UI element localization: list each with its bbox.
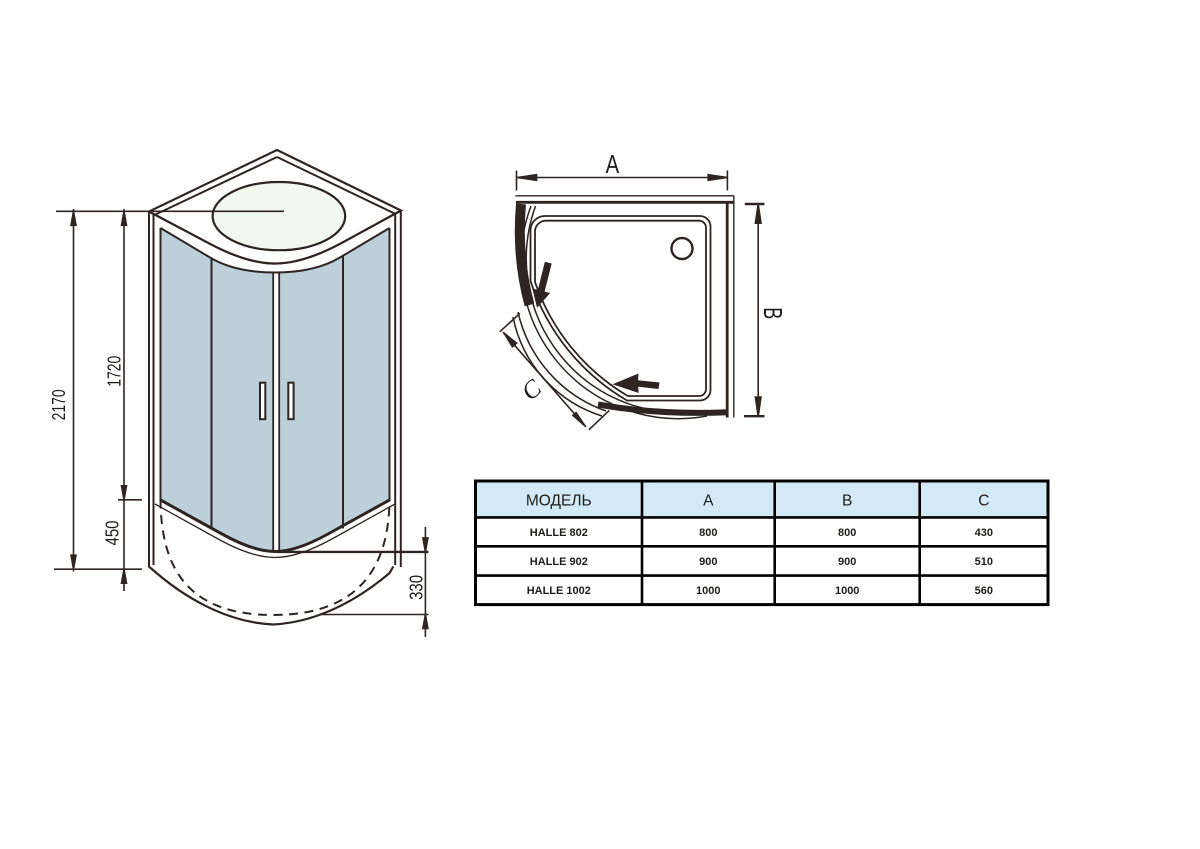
- svg-text:510: 510: [975, 556, 993, 568]
- svg-text:800: 800: [699, 527, 717, 539]
- svg-text:HALLE 902: HALLE 902: [530, 556, 588, 568]
- svg-text:900: 900: [699, 556, 717, 568]
- svg-text:A: A: [703, 493, 714, 510]
- svg-text:1000: 1000: [835, 585, 859, 597]
- svg-text:560: 560: [975, 585, 993, 597]
- svg-text:800: 800: [838, 527, 856, 539]
- svg-text:450: 450: [102, 521, 123, 546]
- svg-text:1000: 1000: [696, 585, 720, 597]
- svg-text:1720: 1720: [103, 356, 124, 387]
- svg-text:430: 430: [975, 527, 993, 539]
- svg-text:B: B: [758, 307, 788, 319]
- svg-text:B: B: [842, 493, 852, 510]
- svg-text:A: A: [606, 149, 620, 179]
- svg-text:900: 900: [838, 556, 856, 568]
- svg-text:МОДЕЛЬ: МОДЕЛЬ: [526, 493, 592, 510]
- svg-text:330: 330: [405, 575, 426, 600]
- svg-text:HALLE 802: HALLE 802: [530, 527, 588, 539]
- svg-text:C: C: [978, 493, 989, 510]
- svg-text:HALLE 1002: HALLE 1002: [527, 585, 591, 597]
- svg-text:2170: 2170: [48, 389, 69, 420]
